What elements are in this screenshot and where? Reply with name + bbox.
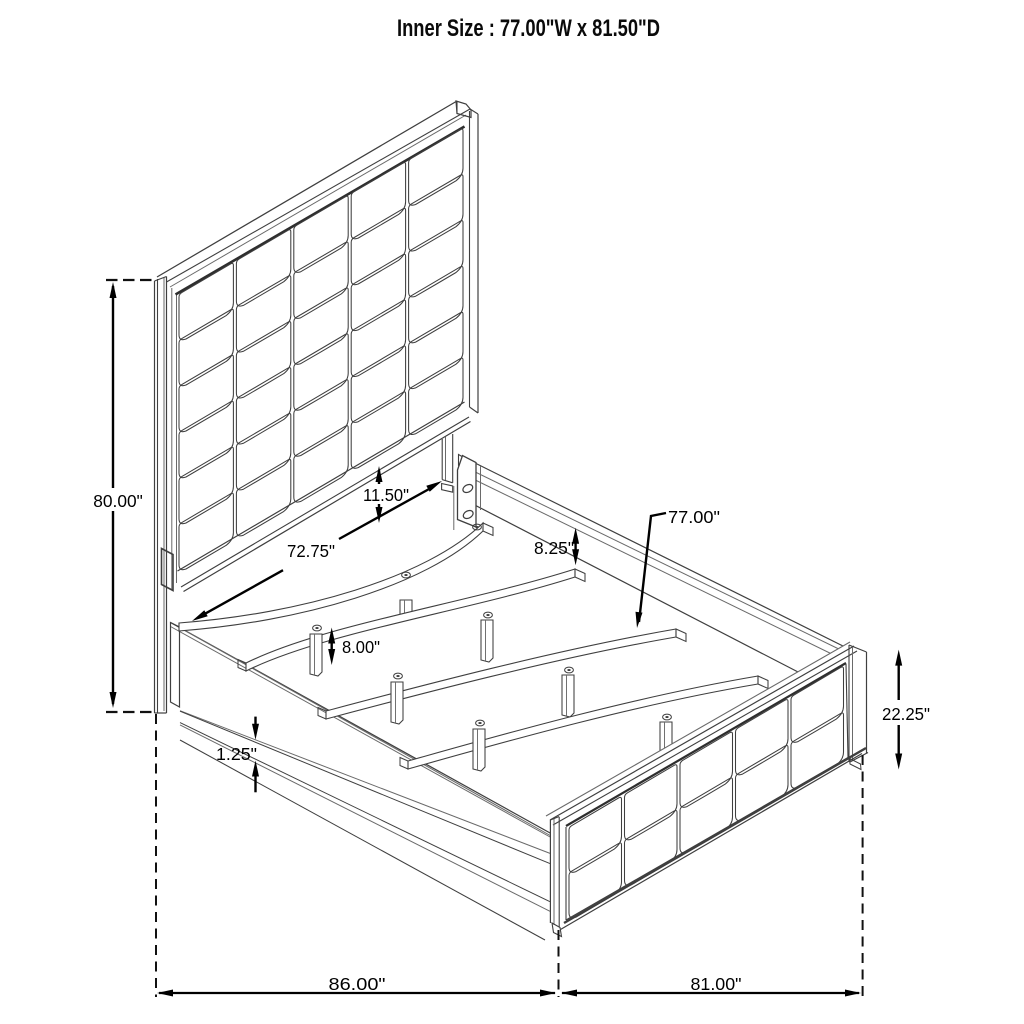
svg-text:22.25": 22.25" — [882, 704, 930, 724]
svg-text:80.00": 80.00" — [93, 491, 143, 511]
svg-text:Inner Size : 77.00"W x 81.50"D: Inner Size : 77.00"W x 81.50"D — [397, 15, 660, 42]
svg-text:86.00": 86.00" — [329, 974, 386, 994]
svg-text:81.00": 81.00" — [691, 974, 742, 994]
svg-text:11.50": 11.50" — [363, 485, 409, 505]
svg-text:77.00": 77.00" — [668, 507, 720, 527]
svg-text:8.25": 8.25" — [534, 538, 574, 558]
svg-text:1.25": 1.25" — [216, 744, 257, 764]
svg-text:72.75": 72.75" — [287, 541, 335, 561]
svg-text:8.00": 8.00" — [342, 637, 380, 657]
